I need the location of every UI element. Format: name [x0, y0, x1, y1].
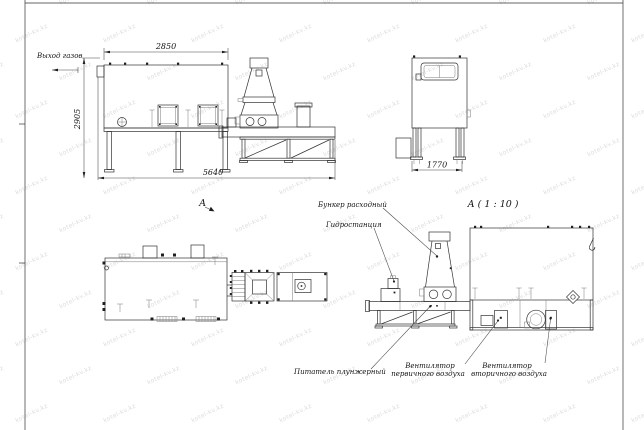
feeder-label: Питатель плунжерный [293, 368, 386, 376]
section-view: А ( 1 : 10 ) [293, 199, 595, 378]
dim-front-height: 2905 [73, 109, 82, 130]
dim-front-width: 2850 [155, 42, 176, 51]
hopper-label: Бункер расходный [317, 201, 387, 209]
hatch-handle [416, 74, 421, 80]
plan-feeder-strip [227, 270, 245, 301]
plan-view: А [103, 198, 328, 322]
drain-flange [567, 291, 580, 304]
secondary-fan-label-line1: Вентилятор [481, 362, 532, 370]
dimension-front-width: 2850 [104, 42, 228, 60]
secondary-air-fan [525, 310, 557, 329]
feeder-box [235, 115, 278, 128]
side-bracket [467, 110, 471, 117]
side-box [396, 138, 411, 158]
plan-top-details [119, 254, 176, 258]
plan-bottom-details [151, 317, 221, 322]
plan-left-details [103, 262, 109, 312]
dim-front-length: 5640 [203, 168, 223, 177]
gas-outlet-label: Выход газов [36, 52, 83, 60]
section-marker: А [198, 198, 215, 211]
section-arrow-icon [209, 207, 215, 212]
section-a-marker: А [198, 198, 206, 209]
top-bolts [109, 63, 223, 65]
lifting-hook [589, 238, 595, 250]
plan-lifting-lugs [117, 257, 218, 312]
primary-fan-label-line2: первичного воздуха [391, 370, 465, 378]
end-legs [411, 128, 466, 164]
boiler-body [104, 65, 228, 128]
hatch-right [198, 105, 218, 126]
end-hatch [416, 63, 458, 80]
technical-drawing: 2850 2905 5640 Выход газов [0, 0, 644, 430]
primary-fan-label-line1: Вентилятор [404, 362, 455, 370]
section-feeder-trough [366, 301, 471, 312]
feeder-stand-truss [375, 311, 457, 329]
end-top-bolts [413, 55, 461, 57]
hydraulic-station [381, 276, 400, 302]
plan-hatch-right [191, 245, 204, 258]
plan-fan-housing [277, 273, 327, 302]
hopper-tower [238, 58, 277, 115]
gas-flow-arrow-icon [52, 69, 58, 72]
front-view: 2850 2905 5640 Выход газов [36, 42, 336, 180]
boiler-stand [104, 128, 230, 172]
flange-circle [118, 118, 127, 127]
gas-outlet-callout: Выход газов [36, 52, 83, 73]
plan-hatch-left [143, 246, 157, 258]
plan-hopper-top [245, 270, 274, 304]
plan-body [105, 258, 227, 320]
section-boiler-body [470, 228, 593, 300]
dimension-front-height: 2905 [73, 58, 100, 178]
dim-side-width: 1770 [427, 161, 447, 170]
section-title: А ( 1 : 10 ) [466, 199, 518, 210]
air-duct [297, 106, 310, 127]
hatch-left [158, 105, 178, 126]
conveyor-truss [240, 137, 336, 163]
dimension-front-length: 5640 [98, 77, 335, 180]
gas-outlet-stub [97, 66, 104, 77]
hydro-label: Гидростанция [325, 221, 382, 229]
end-view: 1770 [396, 55, 471, 172]
section-hopper-tower [420, 232, 457, 302]
secondary-fan-label-line2: вторичного воздуха [471, 370, 547, 378]
drawing-sheet: kotel-kv.kzkotel-kv.kzkotel-kv.kzkotel-k… [0, 0, 644, 430]
hydro-callout: Гидростанция [325, 221, 394, 281]
